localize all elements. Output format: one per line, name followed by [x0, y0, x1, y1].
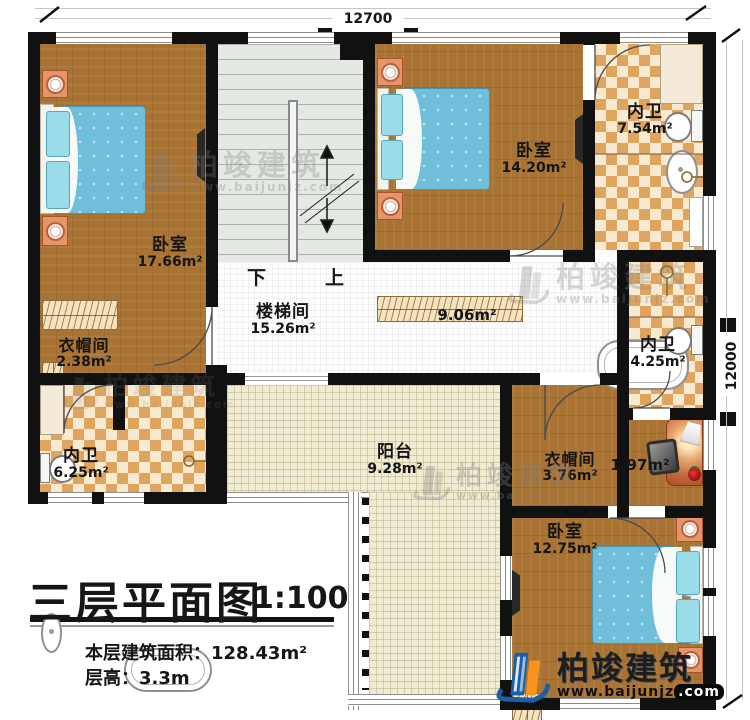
nightstand — [42, 70, 68, 98]
sliding-glass-door — [245, 374, 328, 384]
room-label-stairwell: 楼梯间 15.26m² — [233, 303, 333, 338]
wall-segment — [512, 506, 608, 518]
balcony-floor-lower — [369, 492, 500, 694]
wall-segment — [563, 250, 583, 262]
wall-segment — [617, 250, 715, 262]
company-website: www.baijunjz.com — [557, 684, 724, 700]
window — [392, 32, 560, 44]
room-label-bedroom-top-middle: 卧室 14.20m² — [484, 142, 584, 177]
wall-segment — [206, 365, 227, 504]
window — [703, 548, 716, 588]
pillow — [676, 551, 700, 595]
wall-segment — [500, 373, 512, 506]
nightstand — [676, 516, 703, 542]
window — [48, 492, 92, 504]
dimension-right: 12000 — [724, 336, 740, 396]
nightstand — [377, 192, 403, 220]
room-cloak-bottom-right-floor — [512, 385, 617, 506]
pillow — [676, 599, 700, 643]
room-label-bedroom-bottom-right: 卧室 12.75m² — [515, 523, 615, 558]
wall-segment — [500, 600, 512, 636]
dimension-tick — [720, 318, 736, 332]
plan-title: 三层平面图 — [28, 567, 263, 631]
sink — [666, 150, 698, 194]
wall-segment — [28, 373, 227, 385]
window — [703, 420, 716, 470]
room-label-bath-top-right: 内卫 7.54m² — [595, 103, 695, 138]
room-label-bath-mid-right: 内卫 4.25m² — [608, 336, 708, 371]
wall-segment — [227, 373, 245, 385]
wall-segment — [617, 408, 633, 420]
room-label-bedroom-top-left: 卧室 17.66m² — [120, 236, 220, 271]
wall-segment — [583, 32, 595, 45]
balcony-frame — [348, 694, 500, 706]
pillow — [381, 94, 403, 136]
hallway-area-label: 9.06m² — [417, 307, 517, 324]
floor-plan-canvas: 12700 12000 — [0, 0, 750, 720]
lamp-icon — [381, 197, 400, 216]
wall-segment — [340, 32, 363, 60]
stair-down-label: 下 — [247, 263, 266, 290]
bath-cabinet — [689, 197, 703, 247]
dimension-line — [35, 8, 711, 9]
wall-segment — [583, 100, 595, 262]
pillow — [381, 140, 403, 180]
stair-rail — [288, 100, 298, 262]
room-label-cloak-top-left: 衣帽间 2.38m² — [34, 337, 134, 371]
wall-segment — [28, 32, 40, 504]
tv-icon — [512, 570, 520, 616]
company-logo-icon — [492, 648, 550, 704]
window — [620, 32, 688, 44]
wall-segment — [113, 385, 125, 430]
lamp-icon — [681, 520, 699, 538]
company-logo: 柏竣建筑 www.baijunjz.com — [492, 648, 724, 704]
partition-line — [629, 316, 703, 318]
wall-segment — [500, 506, 512, 556]
room-label-balcony: 阳台 9.28m² — [345, 443, 445, 478]
dimension-tick — [720, 412, 736, 426]
plan-scale: 1:100 — [253, 581, 349, 616]
room-label-bath-bottom-left: 内卫 6.25m² — [31, 447, 131, 482]
window — [703, 596, 716, 636]
wall-segment — [600, 373, 617, 385]
lamp-icon — [381, 63, 400, 82]
lamp-icon — [46, 75, 65, 94]
stair-up-label: 上 — [325, 263, 344, 290]
floor-height-line: 层高：3.3m — [85, 664, 190, 690]
tv-icon — [197, 128, 205, 182]
window — [248, 32, 334, 44]
window — [104, 492, 144, 504]
dimension-top: 12700 — [332, 11, 404, 27]
wall-segment — [363, 32, 375, 262]
dimension-line — [742, 40, 743, 700]
floor-area-line: 本层建筑面积：128.43m² — [85, 639, 307, 665]
window — [56, 32, 172, 44]
wardrobe — [42, 300, 118, 330]
nightstand — [377, 58, 403, 86]
balcony-railing — [362, 498, 369, 690]
wall-segment — [665, 506, 703, 518]
pillow — [46, 111, 70, 157]
window — [703, 196, 716, 250]
balcony-frame — [348, 492, 361, 710]
pillow — [46, 161, 70, 209]
sink-counter — [40, 385, 64, 435]
partition-line — [595, 153, 703, 155]
wall-segment — [363, 250, 510, 262]
sink-counter — [660, 44, 703, 104]
company-name: 柏竣建筑 — [557, 652, 724, 684]
desk-nook-area-label: 1.97m² — [590, 457, 690, 474]
window — [500, 556, 512, 600]
lamp-icon — [46, 222, 65, 241]
nightstand — [42, 216, 68, 246]
